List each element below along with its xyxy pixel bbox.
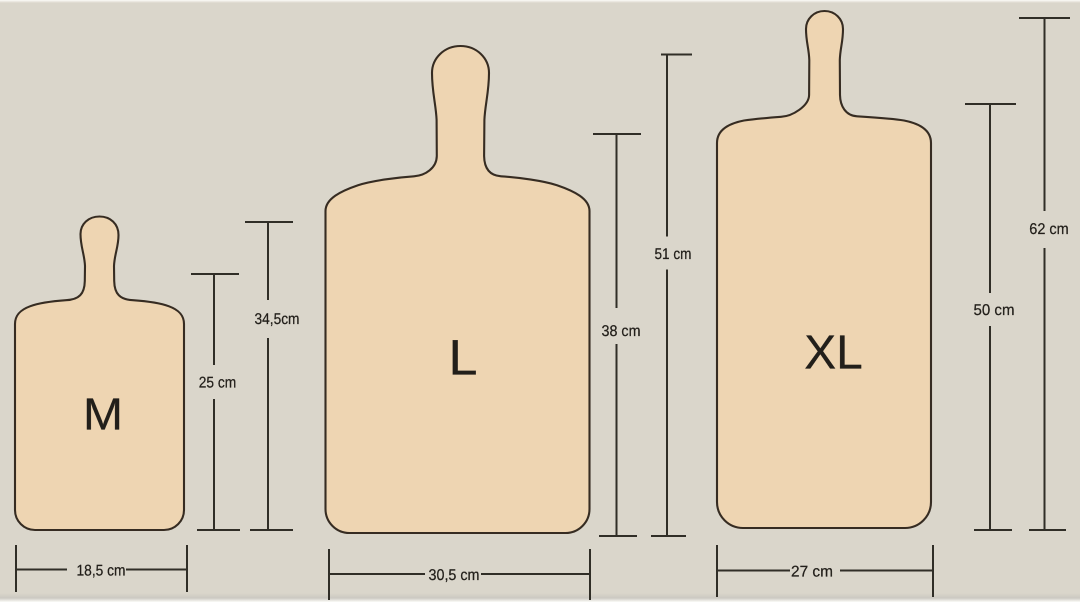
svg-text:50 cm: 50 cm bbox=[974, 302, 1015, 319]
svg-text:25 cm: 25 cm bbox=[199, 375, 237, 392]
svg-text:51 cm: 51 cm bbox=[655, 246, 692, 263]
svg-text:27 cm: 27 cm bbox=[791, 563, 833, 580]
svg-text:XL: XL bbox=[804, 326, 863, 379]
svg-text:L: L bbox=[449, 330, 478, 386]
svg-text:30,5 cm: 30,5 cm bbox=[429, 567, 480, 584]
svg-text:62 cm: 62 cm bbox=[1029, 221, 1069, 238]
svg-text:M: M bbox=[83, 389, 123, 440]
svg-text:34,5cm: 34,5cm bbox=[255, 311, 300, 328]
svg-text:38 cm: 38 cm bbox=[602, 323, 641, 340]
svg-text:18,5 cm: 18,5 cm bbox=[77, 562, 126, 579]
